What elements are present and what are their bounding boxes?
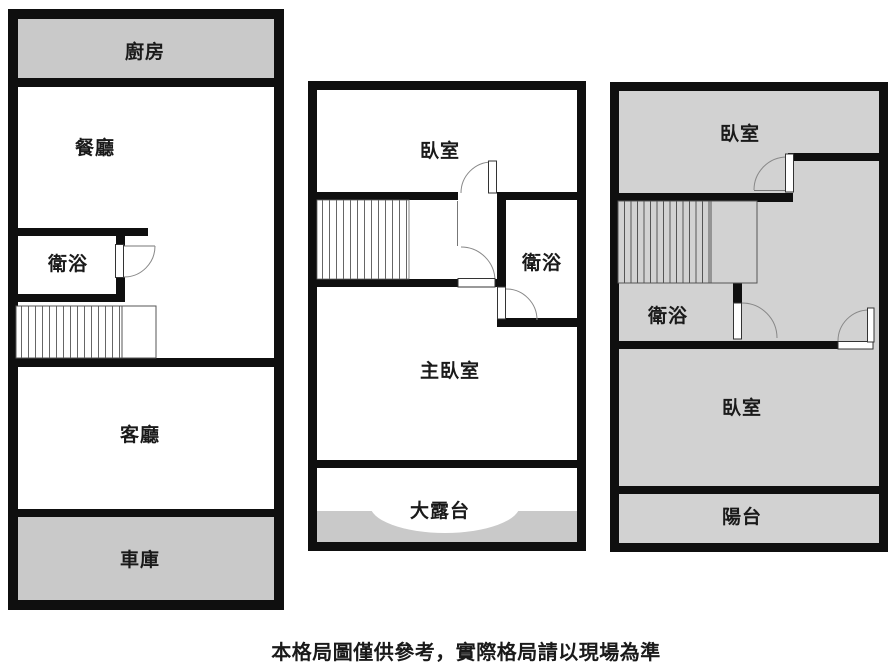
terrace-top-wall bbox=[308, 460, 586, 468]
floorplan-drawing: 廚房 餐廳 衛浴 客廳 車庫 bbox=[0, 0, 889, 669]
floor3-right-door-threshold bbox=[838, 342, 873, 350]
bedroom3-top-label: 臥室 bbox=[720, 122, 760, 145]
bedroom2-door-leaf bbox=[489, 161, 497, 193]
bath2-left-wall bbox=[497, 192, 506, 287]
bedroom3-mid-label: 臥室 bbox=[722, 396, 762, 419]
bath2-door-leaf bbox=[498, 287, 506, 319]
floor1-plan: 廚房 餐廳 衛浴 客廳 車庫 bbox=[8, 9, 284, 610]
bedroom3-door-leaf bbox=[786, 154, 794, 192]
bath1-label: 衛浴 bbox=[47, 252, 88, 275]
bedroom2-wall-right bbox=[497, 192, 586, 200]
stairs-floor3 bbox=[618, 201, 757, 283]
bath1-top-wall bbox=[8, 228, 148, 236]
bedroom3-wall-right bbox=[788, 153, 888, 161]
stairs1-bottom-wall bbox=[8, 358, 284, 367]
bath3-label: 衛浴 bbox=[647, 304, 688, 327]
garage-label: 車庫 bbox=[120, 548, 160, 571]
living-label: 客廳 bbox=[120, 423, 160, 446]
stairs1-treads bbox=[16, 306, 122, 358]
corridor2-door-leaf bbox=[458, 279, 495, 288]
bath3-door-leaf bbox=[734, 303, 742, 339]
balcony-label: 陽台 bbox=[722, 505, 762, 528]
kitchen-label: 廚房 bbox=[125, 40, 165, 63]
bath2-label: 衛浴 bbox=[521, 251, 562, 274]
master-label: 主臥室 bbox=[420, 359, 480, 382]
floor3-right-door-leaf bbox=[868, 308, 875, 342]
living-garage-wall bbox=[8, 509, 284, 517]
bath1-right-wall-upper bbox=[116, 228, 125, 246]
bedroom2-wall-left bbox=[308, 192, 458, 200]
floor3-plan: 臥室 衛浴 臥室 陽台 bbox=[610, 82, 888, 552]
floor3-mid-wall bbox=[610, 341, 838, 349]
stairs3-treads bbox=[618, 201, 711, 283]
floorplan-page: 廚房 餐廳 衛浴 客廳 車庫 bbox=[0, 0, 889, 669]
bath1-bottom-wall bbox=[8, 294, 125, 302]
terrace-label: 大露台 bbox=[410, 499, 470, 522]
bath3-wall-stub bbox=[733, 283, 742, 303]
kitchen-wall bbox=[8, 78, 284, 87]
balcony-top-wall bbox=[610, 486, 888, 494]
bath1-door-leaf bbox=[116, 245, 124, 278]
floor2-plan: 臥室 衛浴 主臥室 大露台 bbox=[308, 81, 586, 551]
dining-label: 餐廳 bbox=[75, 136, 115, 159]
disclaimer-text: 本格局圖僅供參考，實際格局請以現場為準 bbox=[44, 636, 888, 665]
stairs-floor1 bbox=[16, 306, 156, 358]
stairs2-treads bbox=[317, 200, 409, 279]
bath2-bottom-wall bbox=[497, 318, 586, 327]
bedroom2-label: 臥室 bbox=[420, 139, 460, 162]
